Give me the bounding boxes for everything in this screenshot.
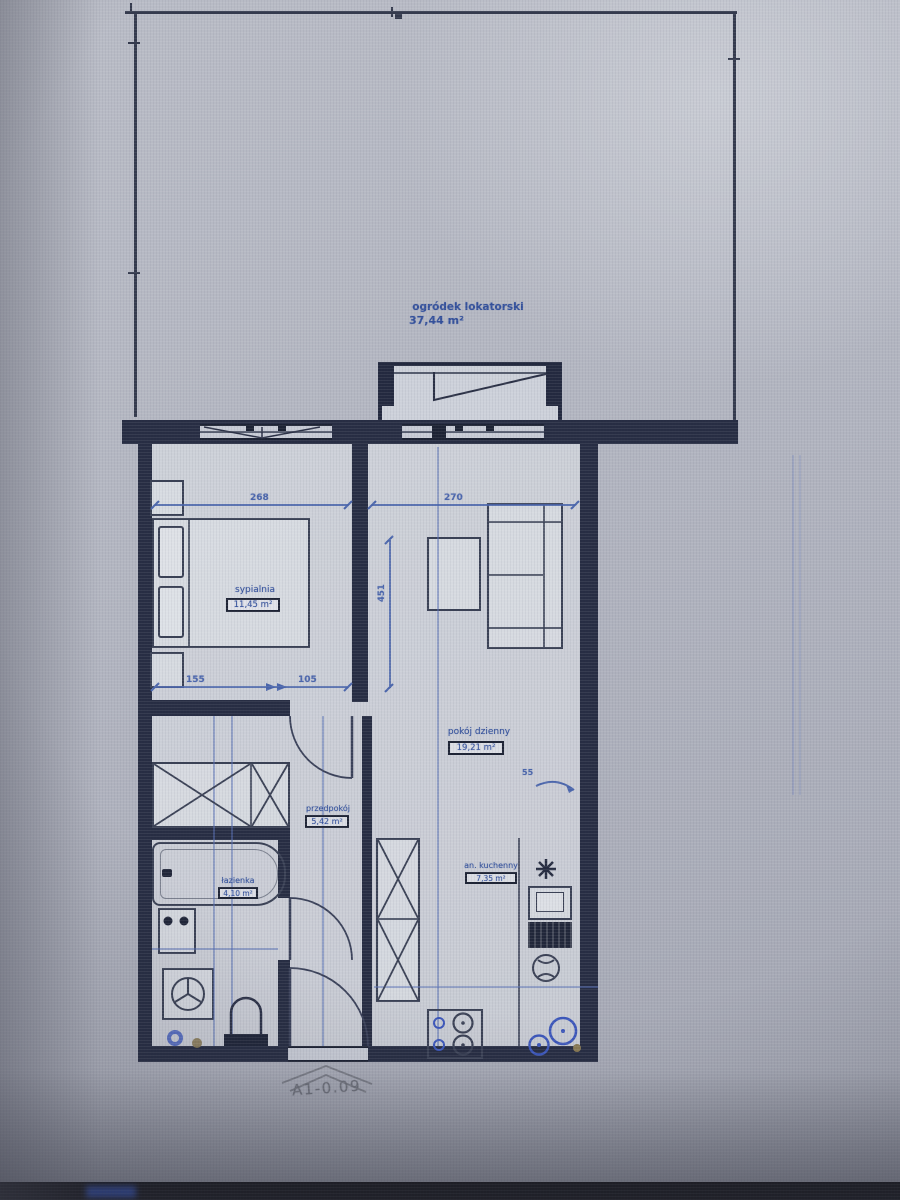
room-label-bath: łazienka — [216, 876, 260, 885]
room-area-bath: 4,10 m² — [218, 887, 258, 899]
light-point-icon — [536, 859, 556, 879]
dimension-ticks — [151, 501, 579, 692]
washbasin-taps — [164, 917, 189, 926]
room-label-hall: przedpokój — [303, 804, 353, 813]
bathroom-door-arc — [290, 898, 352, 960]
dim-seg-right: 105 — [298, 675, 317, 685]
room-label-kitchen: an. kuchenny — [462, 861, 520, 870]
screen-reflection — [792, 455, 794, 795]
washing-machine-drum — [172, 978, 204, 1010]
window-opening-triangles — [204, 427, 320, 438]
screen-reflection — [799, 455, 801, 795]
dim-living-width: 270 — [444, 493, 463, 503]
dimension-arrows — [266, 683, 287, 691]
kitchen-sink-icon — [530, 1018, 582, 1055]
dim-living-depth: 451 — [377, 584, 387, 602]
dim-bedroom-width: 268 — [250, 493, 269, 503]
room-area-kitchen: 7,35 m² — [465, 872, 517, 884]
room-label-bedroom: sypialnia — [222, 585, 288, 595]
floor-plan: ogródek lokatorski 37,44 m² — [0, 0, 900, 1200]
photo-of-floorplan: ogródek lokatorski 37,44 m² — [0, 0, 900, 1200]
room-area-living: 19,21 m² — [448, 741, 504, 755]
bedroom-door-arc — [290, 716, 352, 778]
dim-seg-left: 155 — [186, 675, 205, 685]
room-label-living: pokój dzienny — [444, 727, 514, 737]
fan-icon — [533, 955, 559, 981]
leader-arrow — [536, 782, 574, 793]
hob-icon — [428, 1010, 482, 1058]
photo-bottom-bar-glow — [86, 1186, 136, 1198]
toilet-icon — [224, 998, 268, 1046]
terrace-door-swing — [434, 372, 546, 400]
wardrobe-cross-lines — [154, 764, 418, 1000]
plan-linework — [0, 0, 900, 1200]
room-area-bedroom: 11,45 m² — [226, 598, 280, 612]
dim-wall-detail: 55 — [522, 768, 533, 777]
entrance-door-arc — [290, 968, 368, 1046]
room-area-hall: 5,42 m² — [305, 815, 349, 828]
